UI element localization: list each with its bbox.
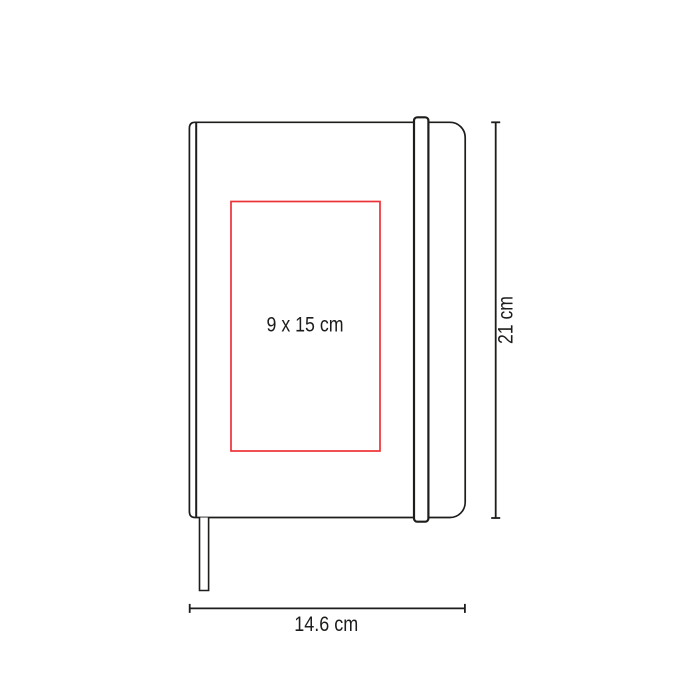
svg-text:9 x 15 cm: 9 x 15 cm	[267, 313, 344, 337]
svg-text:14.6 cm: 14.6 cm	[294, 612, 358, 636]
svg-text:21 cm: 21 cm	[494, 296, 518, 344]
